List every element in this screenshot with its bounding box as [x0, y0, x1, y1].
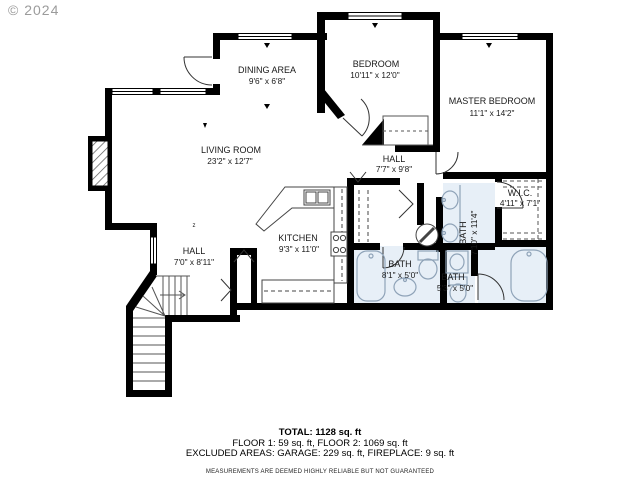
- room-label-bath-hall: BATH: [388, 259, 411, 269]
- stair-direction-arrow: [160, 291, 185, 299]
- room-dims-dining: 9'6" x 6'8": [249, 76, 285, 86]
- window: [238, 34, 292, 40]
- bedroom-door: [343, 99, 369, 136]
- window: [151, 237, 157, 264]
- room-dims-bedroom: 10'11" x 12'0": [350, 70, 400, 80]
- svg-text:7'10" x 11'4": 7'10" x 11'4": [469, 211, 479, 256]
- room-label-hall-lower: HALL: [183, 246, 206, 256]
- room-label-bedroom: BEDROOM: [353, 59, 400, 69]
- linen-door: [399, 190, 413, 218]
- kitchen-sink-icon: [304, 190, 330, 205]
- room-label-dining: DINING AREA: [238, 65, 296, 75]
- area-summary: TOTAL: 1128 sq. ft FLOOR 1: 59 sq. ft, F…: [0, 428, 640, 477]
- room-dims-bath-hall: 8'1" x 5'0": [382, 270, 418, 280]
- room-dims-hall-lower: 7'0" x 8'11": [174, 257, 214, 267]
- excluded-areas: EXCLUDED AREAS: GARAGE: 229 sq. ft, FIRE…: [0, 449, 640, 460]
- room-dims-master-bedroom: 11'1" x 14'2": [470, 108, 515, 118]
- fireplace-icon: [88, 136, 112, 191]
- hall-closet-door: [221, 279, 231, 301]
- stove-icon: [331, 232, 347, 256]
- room-dims-wic: 4'11" x 7'1": [500, 198, 540, 208]
- entry-door: [184, 57, 212, 85]
- disclaimer: MEASUREMENTS ARE DEEMED HIGHLY RELIABLE …: [0, 467, 640, 478]
- window: [160, 89, 206, 95]
- master-bedroom-door: [436, 152, 458, 174]
- window: [112, 89, 153, 95]
- floor-plan: DINING AREA 9'6" x 6'8" BEDROOM 10'11" x…: [0, 0, 640, 480]
- window: [462, 34, 518, 40]
- svg-text:BATH: BATH: [458, 221, 468, 244]
- water-heater-icon: [416, 224, 438, 246]
- total-area: TOTAL: 1128 sq. ft: [0, 428, 640, 439]
- window: [348, 13, 402, 20]
- room-label-kitchen: KITCHEN: [278, 233, 318, 243]
- room-label-master-bedroom: MASTER BEDROOM: [449, 96, 536, 106]
- room-label-wic: W.I.C.: [508, 188, 533, 198]
- room-dims-hall-upper: 7'7" x 9'8": [376, 164, 412, 174]
- room-dims-bath-small: 5'3" x 5'0": [437, 283, 473, 293]
- room-label-living-room: LIVING ROOM: [201, 145, 261, 155]
- room-dims-kitchen: 9'3" x 11'0": [279, 244, 319, 254]
- room-label-bath-small: BATH: [441, 272, 464, 282]
- plan-marker: z: [193, 223, 196, 229]
- room-dims-living-room: 23'2" x 12'7": [207, 156, 253, 166]
- room-label-hall-upper: HALL: [383, 154, 406, 164]
- floor-plan-page: © 2024: [0, 0, 640, 480]
